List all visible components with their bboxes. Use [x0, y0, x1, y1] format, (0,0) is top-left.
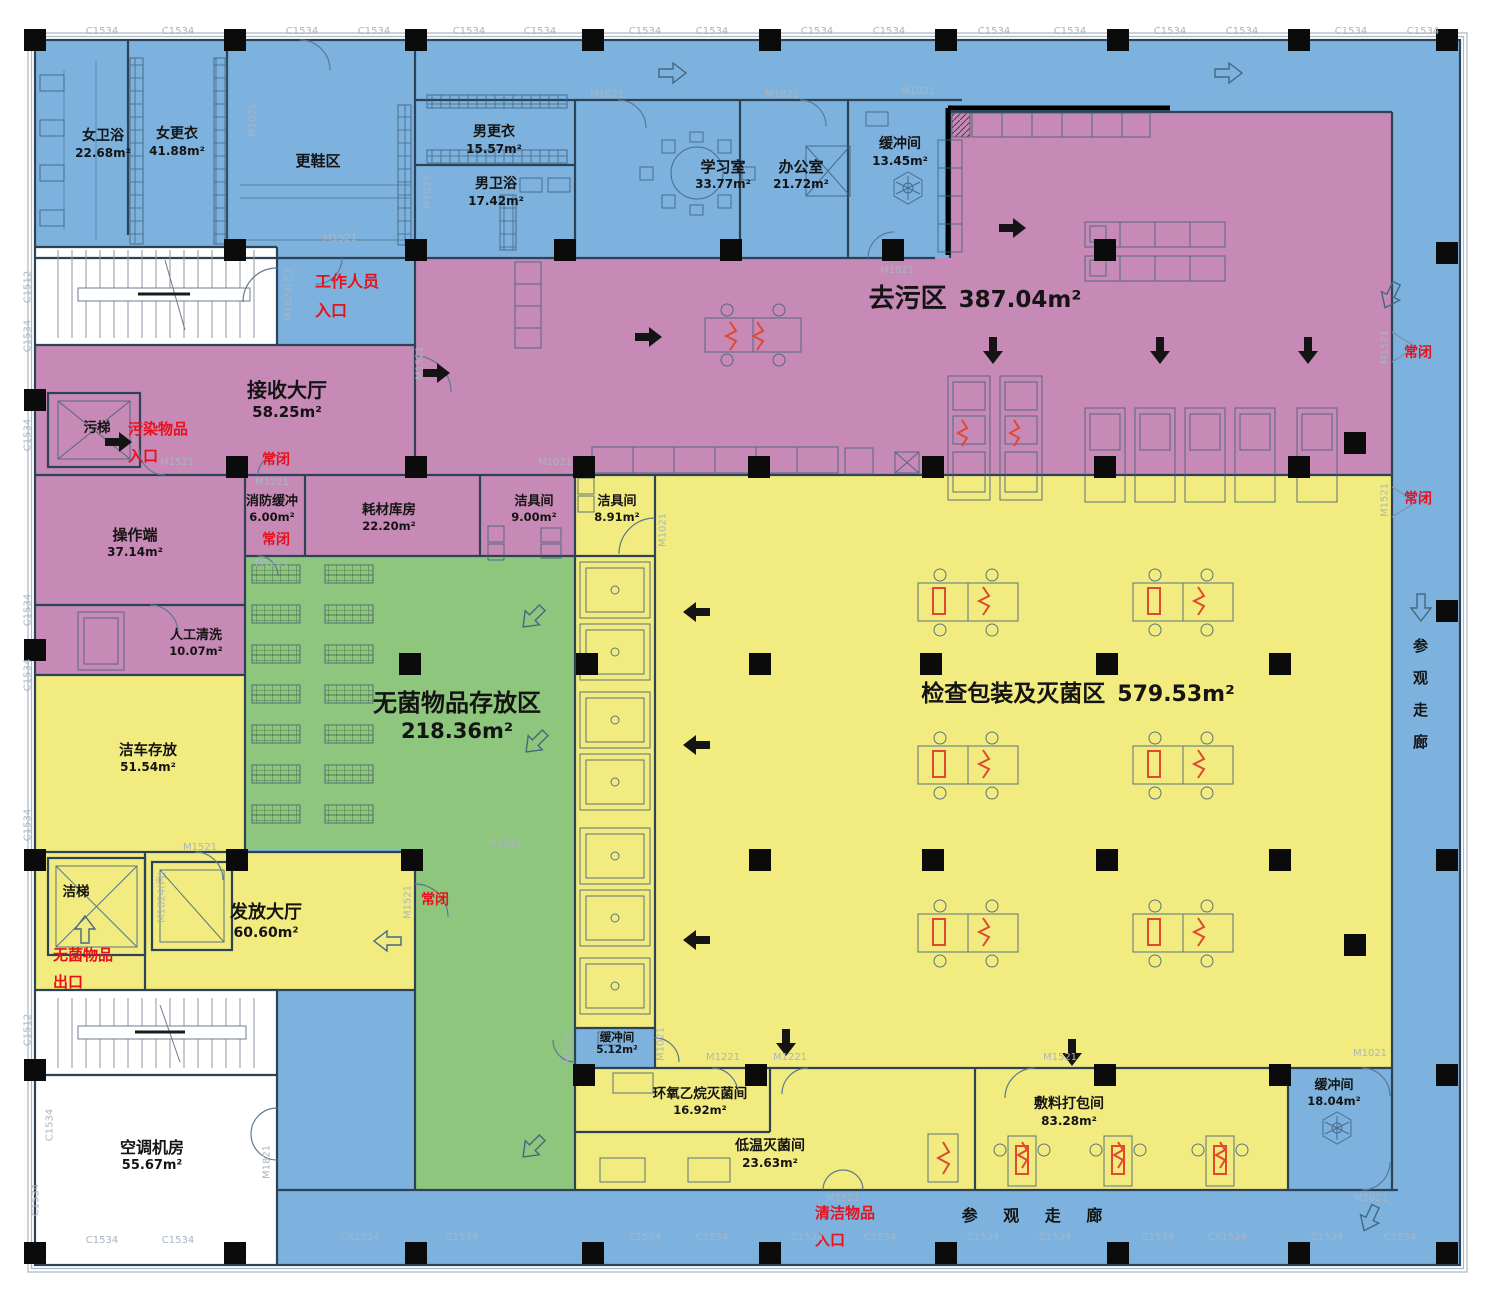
door-code: M1021 — [880, 265, 914, 276]
window-code: C1534 — [1154, 26, 1186, 37]
room-label-buffer-a: 缓冲间 13.45m² — [872, 136, 928, 169]
window-code: CX1534 — [1207, 1232, 1246, 1243]
window-code: C1534 — [629, 1232, 661, 1243]
window-code: C1534 — [31, 1184, 42, 1216]
note-normally-closed-5: 常闭 — [421, 888, 449, 913]
note-staff-entrance: 工作人员 入口 — [315, 268, 379, 326]
window-code: C1534 — [286, 26, 318, 37]
window-code: CX1534 — [340, 1232, 379, 1243]
door-code: M1021 — [656, 1027, 667, 1061]
note-clean-entrance: 清洁物品 入口 — [815, 1200, 875, 1254]
window-code: C1512 — [23, 271, 34, 303]
room-label-janitor-a: 洁具间 9.00m² — [511, 494, 556, 525]
window-code: C1534 — [791, 1232, 823, 1243]
door-code: M1021 — [1353, 1048, 1387, 1059]
room-label-office: 办公室 21.72m² — [773, 158, 829, 192]
room-label-manual-wash: 人工清洗 10.07m² — [169, 628, 222, 659]
door-code: M1221 — [255, 477, 289, 488]
window-code: C1534 — [1407, 26, 1439, 37]
room-label-operation-end: 操作端 37.14m² — [107, 526, 163, 560]
room-label-women-bath: 女卫浴 22.68m² — [75, 128, 131, 161]
room-label-eo-sterilization: 环氧乙烷灭菌间 16.92m² — [653, 1086, 748, 1117]
room-label-men-change: 男更衣 15.57m² — [466, 124, 522, 157]
door-code: M1824(丙) — [153, 871, 168, 923]
window-code: C1534 — [358, 26, 390, 37]
room-label-consumables: 耗材库房 22.20m² — [362, 502, 416, 533]
window-code: C1534 — [864, 1232, 896, 1243]
door-code: M1221 — [773, 1052, 807, 1063]
plan-drawing — [0, 0, 1500, 1309]
door-code: M1521 — [826, 1193, 860, 1204]
room-label-clean-elevator: 洁梯 — [63, 884, 90, 901]
door-code: M1521 — [1380, 330, 1391, 364]
window-code: C1534 — [978, 26, 1010, 37]
window-code: C1534 — [1226, 26, 1258, 37]
door-code: M1021 — [248, 103, 259, 137]
cssd-floor-plan: 女卫浴 22.68m² 女更衣 41.88m² 更鞋区 男更衣 15.57m² … — [0, 0, 1500, 1309]
corridor-label-visit-bottom: 参 观 走 廊 — [962, 1206, 1113, 1226]
room-label-men-bath: 男卫浴 17.42m² — [468, 176, 524, 209]
door-code: M1021 — [423, 175, 434, 209]
room-label-low-temp: 低温灭菌间 23.63m² — [735, 1138, 805, 1171]
door-code: M1521 — [183, 842, 217, 853]
room-label-hvac: 空调机房 55.67m² — [120, 1138, 184, 1174]
note-normally-closed-1: 常闭 — [262, 448, 290, 473]
door-code: M1521 — [323, 233, 357, 244]
window-code: C1534 — [23, 320, 34, 352]
note-normally-closed-3: 常闭 — [1404, 341, 1432, 366]
zone-label-sterile-storage: 无菌物品存放区 218.36m² — [373, 688, 541, 744]
room-label-clean-cart: 洁车存放 51.54m² — [119, 742, 177, 775]
window-code: C1534 — [873, 26, 905, 37]
window-code: C1534 — [1039, 1232, 1071, 1243]
door-code: M1521 — [1380, 483, 1391, 517]
room-label-dispatch-hall: 发放大厅 60.60m² — [230, 902, 302, 942]
window-code: C1534 — [629, 26, 661, 37]
note-normally-closed-4: 常闭 — [1404, 487, 1432, 512]
zone-label-decontamination: 去污区 387.04m² — [869, 283, 1082, 316]
corridor-label-visit-right: 参观走廊 — [1410, 638, 1431, 766]
window-code: C1534 — [801, 26, 833, 37]
door-code: M1521 — [488, 839, 522, 850]
door-code: M1521 — [160, 457, 194, 468]
room-label-buffer-c: 缓冲间 18.04m² — [1307, 1078, 1360, 1109]
window-code: C1534 — [1311, 1232, 1343, 1243]
door-code: M1821 — [262, 1145, 273, 1179]
room-label-dirty-elevator: 污梯 — [84, 420, 111, 437]
door-code: M1521 — [403, 885, 414, 919]
note-normally-closed-2: 常闭 — [262, 528, 290, 553]
door-code: M1521 — [415, 346, 426, 380]
window-code: C1534 — [453, 26, 485, 37]
window-code: C1534 — [1054, 26, 1086, 37]
door-code: M1824(乙) — [280, 269, 295, 321]
window-code: C1534 — [23, 659, 34, 691]
window-code: C1534 — [967, 1232, 999, 1243]
window-code: C1534 — [1142, 1232, 1174, 1243]
door-code: M1021 — [901, 86, 935, 97]
note-sterile-exit: 无菌物品 出口 — [53, 942, 113, 996]
room-label-study: 学习室 33.77m² — [695, 158, 751, 192]
room-label-shoe-change: 更鞋区 — [295, 152, 340, 171]
door-code: M1021 — [563, 1030, 574, 1064]
door-code: M1021 — [765, 89, 799, 100]
window-code: C1534 — [524, 26, 556, 37]
window-code: C1534 — [446, 1232, 478, 1243]
door-code: M1021 — [658, 513, 669, 547]
window-code: C1534 — [23, 809, 34, 841]
zone-label-inspection-packing: 检查包装及灭菌区 579.53m² — [921, 680, 1234, 709]
room-label-dressing-pack: 敷料打包间 83.28m² — [1034, 1096, 1104, 1129]
room-label-buffer-b: 缓冲间 5.12m² — [596, 1030, 637, 1058]
window-code: C1534 — [23, 594, 34, 626]
room-label-janitor-b: 洁具间 8.91m² — [594, 494, 639, 525]
door-code: M1221 — [255, 558, 289, 569]
door-code: M1221 — [706, 1052, 740, 1063]
window-code: C1534 — [696, 1232, 728, 1243]
window-code: C1534 — [23, 419, 34, 451]
window-code: C1534 — [162, 1235, 194, 1246]
window-code: C1534 — [86, 26, 118, 37]
window-code: C1534 — [696, 26, 728, 37]
door-code: M1521 — [1043, 1052, 1077, 1063]
window-code: C1534 — [162, 26, 194, 37]
room-label-fire-buffer: 消防缓冲 6.00m² — [246, 494, 298, 525]
window-code: C1534 — [86, 1235, 118, 1246]
room-label-women-change: 女更衣 41.88m² — [149, 126, 205, 159]
room-label-receiving-hall: 接收大厅 58.25m² — [247, 378, 327, 422]
window-code: C1534 — [1384, 1232, 1416, 1243]
window-code: C1534 — [1335, 26, 1367, 37]
door-code: M1021 — [1354, 1193, 1388, 1204]
door-code: M1021 — [590, 89, 624, 100]
window-code: C1534 — [45, 1109, 56, 1141]
door-code: M1021 — [538, 457, 572, 468]
window-code: C1512 — [23, 1014, 34, 1046]
